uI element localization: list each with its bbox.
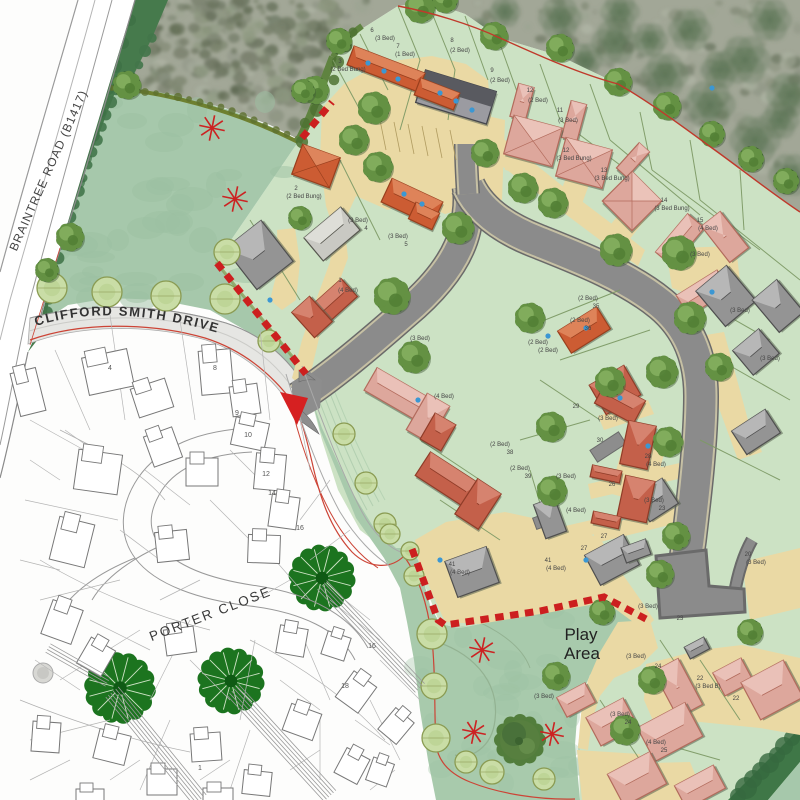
svg-text:(2 Bed Bung): (2 Bed Bung) [286, 194, 321, 200]
svg-text:(3 Bed Bung): (3 Bed Bung) [594, 176, 629, 182]
svg-text:(3 Bed): (3 Bed) [610, 712, 630, 718]
svg-text:Area: Area [564, 644, 600, 663]
svg-text:(2 Bed): (2 Bed) [528, 340, 548, 346]
svg-text:(1 Bed): (1 Bed) [395, 52, 415, 58]
svg-text:39: 39 [525, 474, 532, 480]
svg-text:(4 Bed): (4 Bed) [338, 288, 358, 294]
svg-text:(3 Bed): (3 Bed) [638, 604, 658, 610]
svg-text:23: 23 [677, 616, 684, 622]
svg-text:12: 12 [262, 471, 270, 478]
svg-text:24: 24 [625, 720, 632, 726]
svg-text:38: 38 [507, 450, 514, 456]
svg-text:(4 Bed): (4 Bed) [646, 462, 666, 468]
svg-text:(2 Bed): (2 Bed) [510, 466, 530, 472]
svg-text:24: 24 [655, 664, 662, 670]
svg-text:11: 11 [557, 108, 564, 114]
svg-text:23: 23 [659, 506, 666, 512]
svg-text:(2 Bed): (2 Bed) [528, 98, 548, 104]
svg-text:(4 Bed): (4 Bed) [646, 740, 666, 746]
svg-text:(3 Bed): (3 Bed) [626, 654, 646, 660]
svg-text:(2 Bed): (2 Bed) [490, 78, 510, 84]
svg-text:25: 25 [661, 748, 668, 754]
svg-text:1: 1 [198, 765, 202, 772]
svg-text:27: 27 [601, 534, 608, 540]
svg-text:(3 Bed): (3 Bed) [644, 498, 664, 504]
svg-text:41: 41 [545, 558, 552, 564]
svg-text:(2 Bed): (2 Bed) [578, 296, 598, 302]
svg-text:36: 36 [585, 326, 592, 332]
svg-text:(4 Bed): (4 Bed) [434, 394, 454, 400]
svg-text:(3 Bed): (3 Bed) [348, 218, 368, 224]
svg-text:4: 4 [108, 365, 112, 372]
svg-text:9: 9 [235, 410, 239, 417]
svg-text:(3 Bed): (3 Bed) [556, 474, 576, 480]
svg-text:Play: Play [564, 625, 598, 644]
svg-text:22: 22 [733, 696, 740, 702]
svg-text:18: 18 [341, 683, 349, 690]
svg-text:(2 Bed): (2 Bed) [490, 442, 510, 448]
svg-text:35: 35 [593, 304, 600, 310]
svg-text:(3 Bed): (3 Bed) [388, 234, 408, 240]
svg-text:(3 Bed): (3 Bed) [730, 308, 750, 314]
svg-text:(3 Bed): (3 Bed) [558, 118, 578, 124]
svg-text:8: 8 [213, 365, 217, 372]
svg-text:(3 Bed): (3 Bed) [760, 356, 780, 362]
svg-text:(3 Bed): (3 Bed) [410, 336, 430, 342]
svg-text:(3 Bed Bung): (3 Bed Bung) [556, 156, 591, 162]
svg-text:26: 26 [609, 482, 616, 488]
svg-text:(3 Bed): (3 Bed) [690, 252, 710, 258]
svg-text:(3 Bed): (3 Bed) [598, 416, 618, 422]
svg-text:14: 14 [268, 490, 276, 497]
svg-text:(3 Bed): (3 Bed) [534, 694, 554, 700]
svg-text:(3 Bed Bung): (3 Bed Bung) [654, 206, 689, 212]
svg-text:27: 27 [581, 546, 588, 552]
svg-text:28: 28 [645, 454, 652, 460]
svg-text:14: 14 [661, 198, 668, 204]
svg-text:(3 Bed): (3 Bed) [746, 560, 766, 566]
svg-text:15: 15 [697, 218, 704, 224]
svg-text:41: 41 [449, 562, 456, 568]
svg-text:(3 Bed B): (3 Bed B) [695, 684, 720, 690]
svg-text:12: 12 [563, 148, 570, 154]
svg-text:13: 13 [601, 168, 608, 174]
svg-text:(4 Bed): (4 Bed) [546, 566, 566, 572]
svg-text:22: 22 [697, 676, 704, 682]
svg-text:16: 16 [368, 643, 376, 650]
svg-text:(2 Bed): (2 Bed) [570, 318, 590, 324]
svg-text:(4 Bed): (4 Bed) [566, 508, 586, 514]
svg-text:(2 Bed Bung): (2 Bed Bung) [330, 67, 365, 73]
svg-text:16: 16 [296, 525, 304, 532]
svg-text:(4 Bed): (4 Bed) [698, 226, 718, 232]
svg-text:(3 Bed): (3 Bed) [375, 36, 395, 42]
svg-text:(2 Bed): (2 Bed) [538, 348, 558, 354]
svg-text:(4 Bed): (4 Bed) [450, 570, 470, 576]
svg-text:12: 12 [527, 88, 534, 94]
svg-text:(2 Bed): (2 Bed) [450, 48, 470, 54]
svg-text:30: 30 [597, 438, 604, 444]
svg-text:20: 20 [745, 552, 752, 558]
svg-text:10: 10 [244, 432, 252, 439]
svg-text:29: 29 [573, 404, 580, 410]
